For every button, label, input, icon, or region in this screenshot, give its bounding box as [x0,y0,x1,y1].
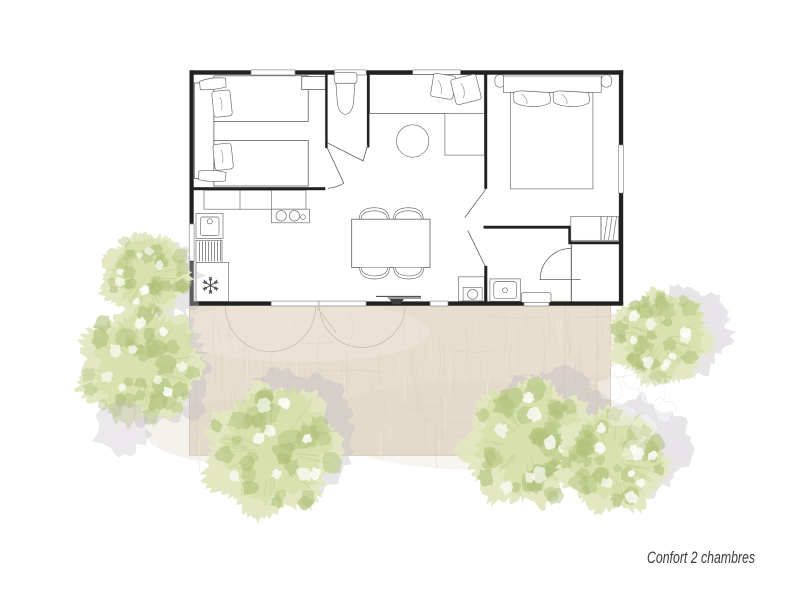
svg-text:Confort 2 chambres: Confort 2 chambres [647,548,755,567]
